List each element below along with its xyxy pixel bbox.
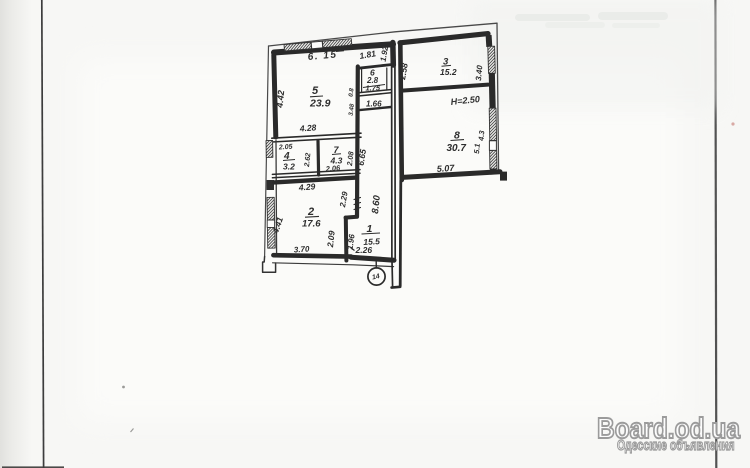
- svg-text:2.08: 2.08: [345, 150, 356, 167]
- svg-text:0.8: 0.8: [348, 87, 356, 97]
- svg-text:4.28: 4.28: [298, 122, 316, 133]
- svg-text:23.9: 23.9: [309, 98, 331, 110]
- svg-text:1.66: 1.66: [366, 100, 382, 109]
- svg-text:2.26: 2.26: [355, 245, 373, 255]
- svg-text:3.40: 3.40: [474, 64, 484, 81]
- svg-text:3.70: 3.70: [294, 244, 311, 254]
- svg-text:8.60: 8.60: [370, 194, 383, 214]
- svg-text:4.42: 4.42: [274, 90, 286, 109]
- svg-text:5.07: 5.07: [436, 163, 455, 174]
- svg-text:5.1: 5.1: [472, 143, 482, 154]
- svg-text:30.7: 30.7: [447, 143, 467, 154]
- svg-text:1.75: 1.75: [366, 84, 381, 93]
- svg-text:4.3: 4.3: [476, 129, 486, 142]
- svg-text:2.09: 2.09: [325, 230, 337, 249]
- svg-text:15.2: 15.2: [440, 67, 457, 77]
- svg-text:2.62: 2.62: [302, 152, 313, 168]
- svg-text:17.6: 17.6: [302, 219, 321, 230]
- svg-text:3.2: 3.2: [283, 162, 295, 172]
- svg-text:5: 5: [312, 85, 319, 97]
- svg-text:2.06: 2.06: [324, 163, 341, 173]
- svg-text:4.29: 4.29: [297, 181, 315, 192]
